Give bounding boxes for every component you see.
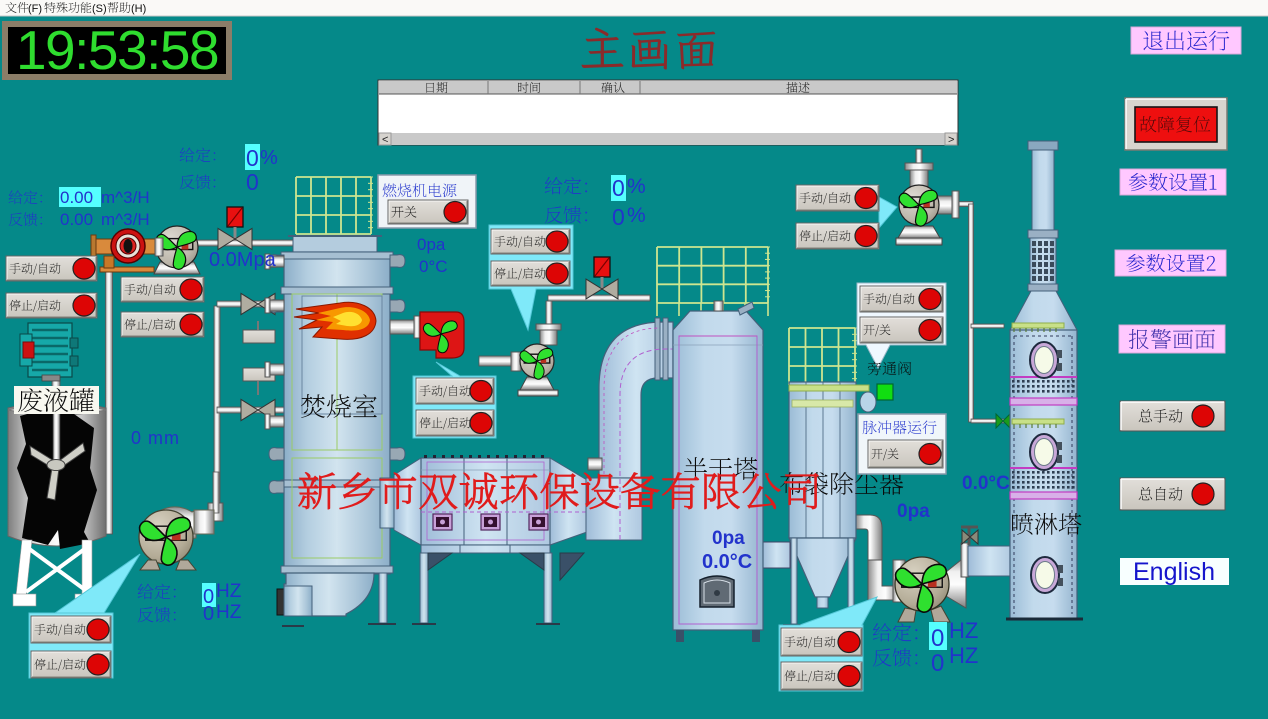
svg-text:0: 0 [246, 145, 259, 171]
svg-text:HZ: HZ [949, 618, 978, 643]
svg-text:0pa: 0pa [417, 235, 446, 254]
svg-text:%: % [627, 175, 646, 198]
svg-text:0: 0 [931, 650, 944, 677]
svg-text:<: < [382, 134, 388, 146]
svg-text:0.0°C: 0.0°C [702, 551, 752, 573]
svg-text:0°C: 0°C [419, 257, 448, 276]
svg-text:0.0Mpa: 0.0Mpa [209, 249, 277, 271]
svg-text:%: % [260, 147, 278, 169]
svg-text:English: English [1133, 558, 1215, 586]
svg-text:0: 0 [612, 204, 625, 230]
svg-text:(F): (F) [28, 3, 42, 15]
svg-text:(H): (H) [131, 3, 146, 15]
svg-text:0.00: 0.00 [60, 188, 93, 207]
svg-text:0: 0 [612, 175, 625, 201]
svg-text:0: 0 [203, 603, 214, 625]
svg-text:m^3/H: m^3/H [101, 210, 150, 229]
svg-text:0.00: 0.00 [60, 210, 93, 229]
svg-text:0pa: 0pa [897, 501, 930, 522]
svg-text:0: 0 [931, 625, 944, 652]
svg-text:HZ: HZ [216, 581, 242, 602]
svg-text:HZ: HZ [216, 602, 242, 623]
svg-text:%: % [627, 204, 646, 227]
svg-text:>: > [948, 134, 954, 146]
svg-text:(S): (S) [92, 3, 107, 15]
svg-text:19:53:58: 19:53:58 [16, 19, 218, 81]
svg-text:m^3/H: m^3/H [101, 188, 150, 207]
svg-text:HZ: HZ [949, 643, 978, 668]
svg-text:0pa: 0pa [712, 528, 745, 549]
svg-text:0.0°C: 0.0°C [962, 473, 1010, 494]
svg-text:0 mm: 0 mm [131, 428, 180, 448]
svg-text:0: 0 [246, 169, 259, 195]
